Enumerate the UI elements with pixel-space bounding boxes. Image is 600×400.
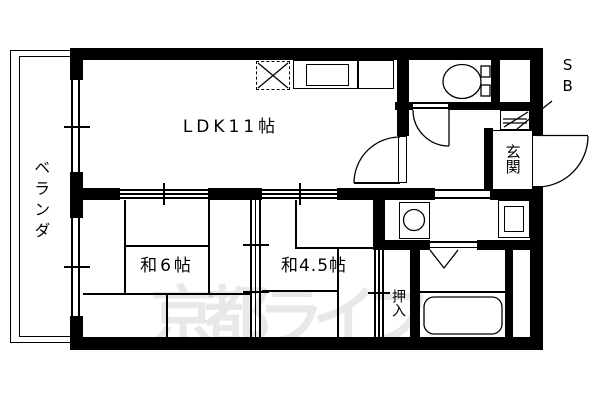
room-label-ldk: LDK11帖	[183, 118, 279, 138]
bathtub-symbol	[424, 297, 502, 334]
label-shoe-box: SB	[558, 56, 575, 98]
toilet-tank	[481, 66, 490, 77]
washing-machine-circle	[404, 210, 425, 231]
room-label-tatami6: 和6帖	[140, 257, 194, 277]
room-label-entrance: 玄関	[503, 144, 520, 174]
ldk-door-arc	[354, 137, 400, 183]
toilet-bowl-symbol	[443, 65, 481, 99]
toilet-tank	[481, 85, 490, 96]
folding-door-v	[430, 250, 458, 268]
floor-plan: ベランダ LDK11帖 和6帖 和4.5帖 押入 玄関 SB 京都ライフ	[0, 0, 600, 400]
room-label-tatami45: 和4.5帖	[281, 257, 347, 277]
plan-shapes	[0, 0, 600, 400]
toilet-door-arc	[413, 110, 449, 146]
entrance-door-arc	[537, 136, 588, 187]
room-label-closet: 押入	[390, 289, 406, 317]
room-label-balcony: ベランダ	[31, 159, 49, 243]
